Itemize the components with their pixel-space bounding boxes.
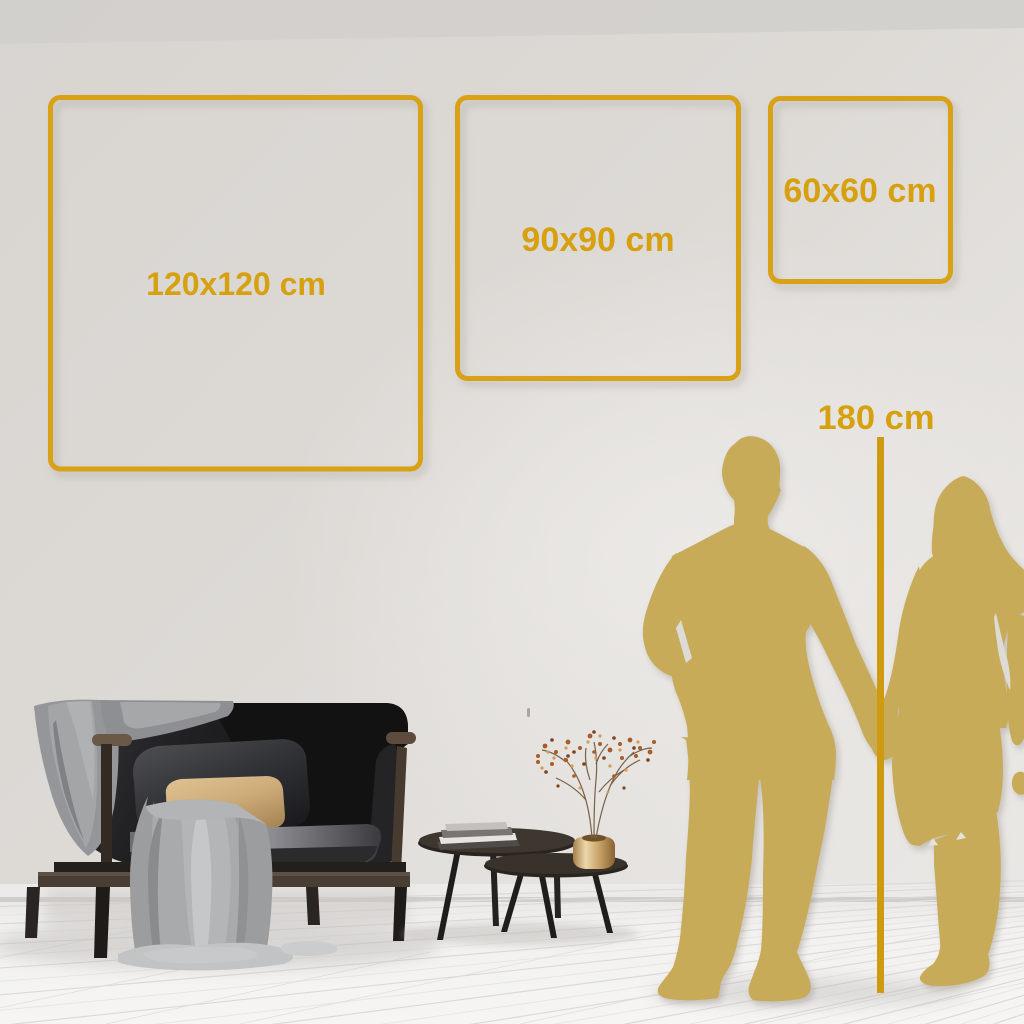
svg-text:180 cm: 180 cm — [817, 399, 934, 437]
svg-text:60x60 cm: 60x60 cm — [783, 172, 936, 210]
svg-text:120x120 cm: 120x120 cm — [146, 266, 326, 302]
svg-text:90x90 cm: 90x90 cm — [521, 221, 674, 259]
